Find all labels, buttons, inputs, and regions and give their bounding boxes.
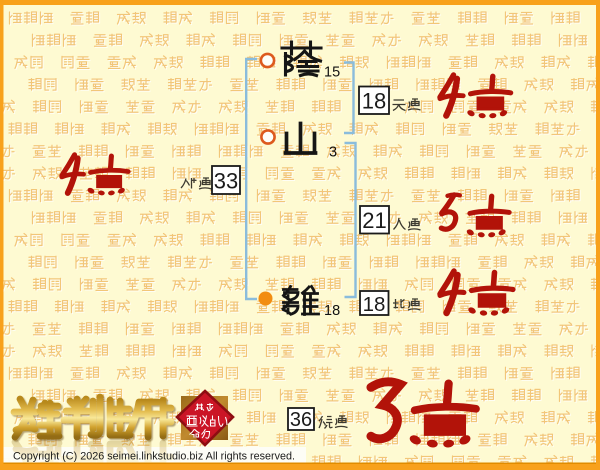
svg-text:Copyright (C) 2026 seimei.link: Copyright (C) 2026 seimei.linkstudio.biz… [13, 451, 295, 463]
svg-text:18: 18 [362, 89, 386, 114]
svg-text:15: 15 [324, 65, 340, 81]
svg-text:18: 18 [324, 303, 340, 319]
svg-text:33: 33 [214, 169, 238, 194]
svg-text:21: 21 [362, 208, 386, 233]
svg-text:3: 3 [329, 145, 337, 161]
svg-text:36: 36 [290, 409, 312, 431]
svg-text:18: 18 [363, 293, 386, 316]
